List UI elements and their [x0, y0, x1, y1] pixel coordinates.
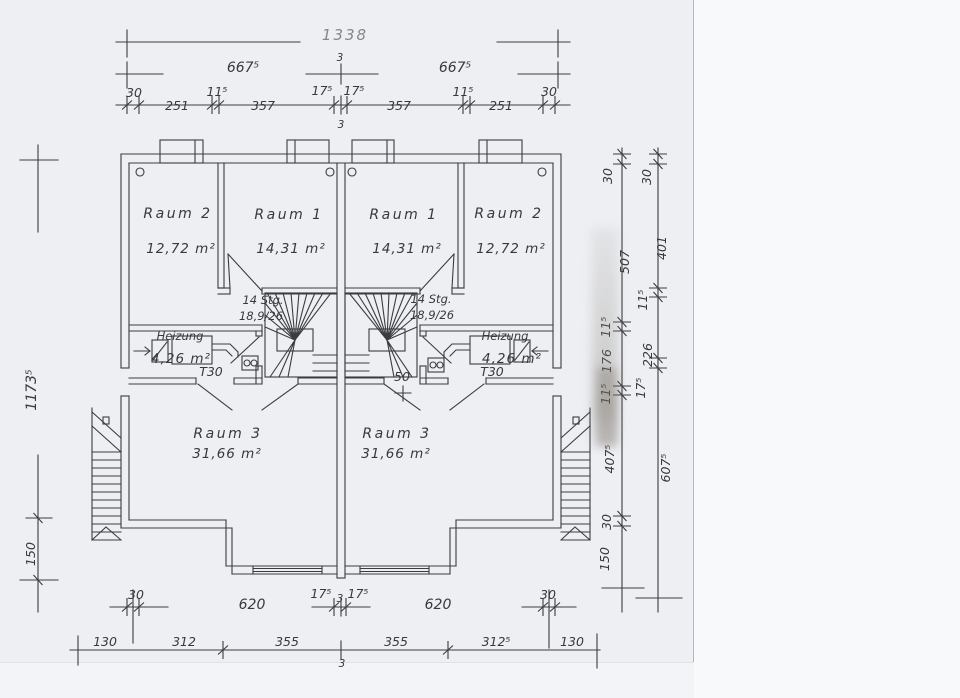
dim-right-inner-7: 150	[597, 547, 612, 571]
dim-top-left-half: 667⁵	[227, 60, 260, 76]
room-area-raum2-left: 12,72 m²	[146, 241, 216, 257]
dim-top-chain-0: 30	[126, 85, 142, 100]
dim-top-chain-4: 17⁵	[312, 83, 333, 98]
bottom-dimension-lines	[70, 590, 600, 668]
room-name-raum2-left: Raum 2	[143, 206, 212, 222]
dim-bot-lower-0: 130	[93, 634, 117, 649]
dim-top-chain-8: 251	[489, 98, 513, 113]
scanned-floor-plan: 1338 667⁵ 3 667⁵ 30 251 11⁵ 357 17⁵ 17⁵ …	[0, 0, 960, 698]
dim-right-outer-0: 30	[639, 169, 654, 185]
room-area-raum3-left: 31,66 m²	[192, 446, 262, 462]
room-area-raum1-right: 14,31 m²	[372, 241, 442, 257]
dim-right-inner-3: 176	[599, 349, 614, 373]
room-area-raum2-right: 12,72 m²	[476, 241, 546, 257]
dim-bot-upper-1: 620	[239, 597, 266, 613]
stair-rise-right: 18,9/26	[410, 308, 454, 322]
dim-bot-upper-0: 30	[128, 587, 144, 602]
bottom-dimension-labels: 30 620 17⁵ 3 17⁵ 620 30 130 312 355 355 …	[93, 586, 584, 670]
floorplan-svg: 1338 667⁵ 3 667⁵ 30 251 11⁵ 357 17⁵ 17⁵ …	[0, 0, 960, 698]
wall-stub-dim: 50	[394, 369, 411, 401]
dim-top-chain-3: 357	[251, 98, 275, 113]
dim-bot-lower-1: 312	[172, 634, 196, 649]
exterior-stair-left	[92, 408, 121, 540]
room-name-raum2-right: Raum 2	[474, 206, 543, 222]
room-name-raum1-right: Raum 1	[369, 207, 438, 223]
dim-left-total: 1173⁵	[24, 369, 40, 411]
dim-right-inner-4: 11⁵	[598, 384, 613, 405]
right-dimension-labels: 30 507 11⁵ 176 11⁵ 407⁵ 30 150 30 401 11…	[597, 168, 673, 571]
dim-left-stair: 150	[23, 542, 38, 566]
dim-bot-upper-2: 17⁵	[311, 586, 332, 601]
room-area-raum3-right: 31,66 m²	[361, 446, 431, 462]
dim-right-outer-1: 401	[654, 236, 669, 260]
room-name-raum3-right: Raum 3	[362, 426, 431, 442]
dim-top-chain-6: 357	[387, 98, 411, 113]
room-name-raum3-left: Raum 3	[193, 426, 262, 442]
dim-right-outer-2: 11⁵	[635, 290, 650, 311]
dim-top-chain-7: 11⁵	[453, 84, 474, 99]
dim-bot-lower-5: 130	[560, 634, 584, 649]
dim-bot-upper-6: 30	[540, 587, 556, 602]
dim-right-inner-1: 507	[617, 250, 632, 274]
dim-bot-lower-4: 312⁵	[482, 634, 511, 649]
dim-right-outer-5: 607⁵	[658, 454, 673, 483]
dim-right-inner-5: 407⁵	[602, 445, 617, 474]
dim-top-right-half: 667⁵	[439, 60, 472, 76]
stair-rise-left: 18,9/26	[239, 309, 283, 323]
dim-bot-upper-5: 620	[425, 597, 452, 613]
dim-right-inner-2: 11⁵	[598, 317, 613, 338]
dim-wall-stub-50: 50	[394, 369, 410, 384]
dim-bot-lower-2: 355	[275, 634, 299, 649]
room-name-raum1-left: Raum 1	[254, 207, 323, 223]
door-label-t30-left: T30	[199, 364, 223, 379]
dim-top-chain-5: 17⁵	[344, 83, 365, 98]
door-swings	[198, 254, 484, 410]
winder-stair-right	[345, 293, 417, 377]
dim-top-gap: 3	[337, 52, 344, 64]
dim-top-gap-below: 3	[338, 119, 345, 131]
dim-top-chain-1: 251	[165, 98, 189, 113]
stair-label-left: 14 Stg.	[242, 293, 283, 307]
dim-top-total: 1338	[322, 26, 368, 44]
dim-right-inner-6: 30	[599, 514, 614, 530]
dim-bot-gap-below: 3	[339, 658, 346, 670]
dim-top-chain-2: 11⁵	[207, 84, 228, 99]
dim-top-chain-9: 30	[541, 84, 557, 99]
dim-bot-lower-3: 355	[384, 634, 408, 649]
room-name-heizung-right: Heizung	[482, 329, 529, 343]
door-label-t30-right: T30	[480, 364, 504, 379]
exterior-stair-right	[561, 408, 590, 540]
dim-right-outer-3: 226	[640, 343, 655, 367]
dim-bot-upper-3: 3	[337, 593, 344, 605]
vent-circles	[136, 168, 546, 176]
stair-label-right: 14 Stg.	[410, 292, 451, 306]
dim-right-outer-4: 17⁵	[633, 378, 648, 399]
room-area-raum1-left: 14,31 m²	[256, 241, 326, 257]
dim-bot-upper-4: 17⁵	[348, 586, 369, 601]
dim-right-inner-0: 30	[600, 168, 615, 184]
room-name-heizung-left: Heizung	[157, 329, 204, 343]
chimney-blocks	[160, 140, 522, 163]
